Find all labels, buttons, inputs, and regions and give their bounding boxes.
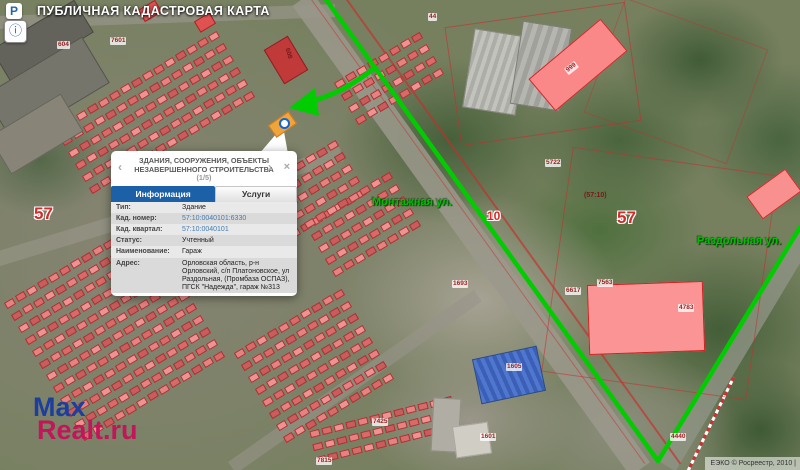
info-field-row: Статус:Учтенный [111,235,297,246]
garage-building [29,315,41,326]
garage-building [40,309,52,320]
garage-building [174,309,186,320]
garage-building [90,344,102,355]
garage-building [280,401,292,412]
garage-building [310,351,322,362]
garage-building [403,69,415,80]
garage-building [273,389,285,400]
garage-building [177,130,189,141]
garage-building [105,109,117,120]
garage-building [372,427,383,436]
garage-building [126,354,138,365]
garage-building [252,353,264,364]
garage-building [147,390,159,401]
building [452,422,492,459]
garage-building [153,64,165,75]
garage-building [393,408,404,417]
garage-building [109,300,121,311]
garage-building [181,321,193,332]
garage-building [291,395,303,406]
garage-building [101,127,113,138]
garage-building [370,178,382,189]
garage-building [321,426,332,435]
garage-building [144,360,156,371]
garage-building [174,100,186,111]
garage-building [83,332,95,343]
garage-building [86,362,98,373]
garage-building [51,302,63,313]
garage-building [411,32,423,43]
garage-building [213,351,225,362]
garage-building [381,411,392,420]
garage-building [138,299,150,310]
garage-building [169,377,181,388]
garage-building [341,164,353,175]
garage-building [411,431,422,440]
garage-building [87,313,99,324]
garage-building [11,310,23,321]
field-label: Наименование: [111,246,182,257]
garage-building [369,228,381,239]
garage-building [189,74,201,85]
info-field-row: Кад. номер:57:10:0040101:6330 [111,213,297,224]
tab-information[interactable]: Информация [111,186,215,202]
close-popup-button[interactable]: × [284,162,290,172]
garage-building [333,423,344,432]
garage-building [399,88,411,99]
garage-building [167,297,179,308]
garage-building [112,330,124,341]
garage-building [47,321,59,332]
garage-building [313,382,325,393]
garage-building [348,176,360,187]
garage-building [311,230,323,241]
garage-building [73,289,85,300]
garage-building [380,221,392,232]
garage-building [138,89,150,100]
garage-building [149,82,161,93]
garage-building [115,361,127,372]
garage-building [407,50,419,61]
cadastral-map-app: 6047601449995722169366177563478316057425… [0,0,800,470]
garage-building [349,392,361,403]
garage-building [145,311,157,322]
garage-building [325,254,337,265]
garage-building [92,245,104,256]
garage-building [278,322,290,333]
garage-building [4,298,16,309]
garage-building [166,347,178,358]
garage-building [116,312,128,323]
info-field-row: Кад. квартал:57:10:0040101 [111,224,297,235]
parcel-number-label: 1693 [452,280,468,288]
header: Р ПУБЛИЧНАЯ КАДАСТРОВАЯ КАРТА [0,0,800,24]
garage-building [362,216,374,227]
garage-building [68,147,80,158]
garage-building [402,208,414,219]
watermark: Max Realt.ru [33,396,138,442]
garage-building [112,121,124,132]
garage-building [97,146,109,157]
garage-building [81,252,93,263]
garage-building [163,106,175,117]
garage-building [432,68,444,79]
garage-building [381,82,393,93]
garage-building [127,95,139,106]
garage-building [405,405,416,414]
garage-building [374,70,386,81]
garage-building [133,366,145,377]
garage-building [307,320,319,331]
garage-building [80,301,92,312]
garage-building [134,107,146,118]
garage-building [327,452,338,461]
garage-building [59,265,71,276]
garage-building [222,55,234,66]
garage-building [360,386,372,397]
garage-building [347,313,359,324]
garage-building [315,196,327,207]
garage-building [399,434,410,443]
garage-building [318,242,330,253]
garage-building [245,341,257,352]
garage-building [277,371,289,382]
garage-building [68,357,80,368]
garage-building [285,334,297,345]
garage-building [75,159,87,170]
garage-building [158,384,170,395]
garage-building [69,308,81,319]
garage-building [32,346,44,357]
garage-building [70,258,82,269]
garage-building [336,436,347,445]
field-label: Кад. номер: [111,213,182,224]
garage-building [111,380,123,391]
garage-building [267,328,279,339]
garage-building [255,384,267,395]
garage-building [333,289,345,300]
garage-building [185,303,197,314]
garage-building [378,52,390,63]
garage-building [156,94,168,105]
garage-building [94,325,106,336]
watermark-line2: Realt.ru [37,419,138,442]
garage-building [351,446,362,455]
garage-building [387,233,399,244]
garage-building [184,352,196,363]
garage-building [262,396,274,407]
garage-building [314,332,326,343]
garage-building [84,282,96,293]
garage-building [322,223,334,234]
garage-building [129,385,141,396]
garage-building [66,277,78,288]
garage-building [185,93,197,104]
garage-building [86,152,98,163]
garage-building [274,340,286,351]
parcel-number-label: 7601 [110,37,126,45]
garage-building [57,363,69,374]
garage-building [202,357,214,368]
garage-building [343,331,355,342]
garage-building [177,340,189,351]
garage-building [339,350,351,361]
garage-building [79,140,91,151]
garage-building [325,326,337,337]
garage-building [79,350,91,361]
garage-building [354,325,366,336]
garage-building [297,191,309,202]
garage-building [151,372,163,383]
garage-building [97,356,109,367]
garage-building [408,418,419,427]
garage-building [389,45,401,56]
garage-building [337,183,349,194]
garage-building [26,285,38,296]
garage-building [359,185,371,196]
garage-building [348,433,359,442]
garage-building [108,139,120,150]
garage-building [317,363,329,374]
garage-building [130,126,142,137]
garage-building [76,320,88,331]
field-value-link[interactable]: 57:10:0040101 [182,224,297,235]
garage-building [396,421,407,430]
garage-building [152,113,164,124]
popup-tabs: Информация Услуги [111,186,297,202]
garage-building [384,202,396,213]
garage-building [65,326,77,337]
info-button[interactable]: ⓘ [4,20,27,43]
garage-building [119,342,131,353]
popup-header: ‹ ЗДАНИЯ, СООРУЖЕНИЯ, ОБЪЕКТЫ НЕЗАВЕРШЕН… [111,151,297,186]
garage-building [311,302,323,313]
garage-building [207,80,219,91]
garage-building [241,360,253,371]
garage-building [200,68,212,79]
garage-building [137,138,149,149]
garage-building [204,49,216,60]
garage-building [192,105,204,116]
garage-building [347,241,359,252]
garage-building [232,97,244,108]
garage-building [312,442,323,451]
garage-building [25,334,37,345]
garage-building [329,235,341,246]
field-value-link[interactable]: 57:10:0040101:6330 [182,213,297,224]
garage-building [182,62,194,73]
garage-building [82,381,94,392]
garage-building [296,327,308,338]
garage-building [365,246,377,257]
garage-building [104,368,116,379]
garage-building [173,359,185,370]
info-field-row: Наименование:Гараж [111,246,297,257]
garage-building [93,164,105,175]
garage-building [376,240,388,251]
garage-building [218,73,230,84]
garage-building [136,397,148,408]
garage-building [123,324,135,335]
building [264,36,309,85]
field-value: Орловская область, р-н Орловский, с/п Пл… [182,258,297,294]
garage-building [55,284,67,295]
garage-building [321,344,333,355]
garage-building [159,335,171,346]
garage-building [162,365,174,376]
garage-building [199,327,211,338]
parcel-number-label: 5722 [545,159,561,167]
garage-building [75,369,87,380]
garage-building [122,373,134,384]
garage-building [98,306,110,317]
garage-building [214,92,226,103]
garage-building [22,303,34,314]
garage-building [127,305,139,316]
garage-building [171,69,183,80]
garage-building [208,31,220,42]
garage-building [191,364,203,375]
garage-building [180,371,192,382]
garage-building [234,348,246,359]
garage-building [101,337,113,348]
feature-info-popup: ‹ ЗДАНИЯ, СООРУЖЕНИЯ, ОБЪЕКТЫ НЕЗАВЕРШЕН… [111,151,297,296]
garage-building [256,335,268,346]
garage-building [421,74,433,85]
info-field-row: Адрес:Орловская область, р-н Орловский, … [111,258,297,294]
garage-building [387,437,398,446]
route-arrowhead-icon [289,88,319,116]
garage-building [203,98,215,109]
field-label: Адрес: [111,258,182,294]
garage-building [319,177,331,188]
garage-building [48,272,60,283]
garage-building [324,439,335,448]
garage-building [54,333,66,344]
garage-building [164,57,176,68]
garage-building [145,101,157,112]
garage-building [360,430,371,439]
garage-building [123,114,135,125]
garage-building [400,38,412,49]
garage-building [371,379,383,390]
prev-object-button[interactable]: ‹ [118,162,122,172]
garage-building [181,112,193,123]
garage-building [83,122,95,133]
garage-building [343,259,355,270]
garage-building [211,61,223,72]
garage-building [148,131,160,142]
garage-building [358,234,370,245]
garage-building [388,94,400,105]
garage-building [46,370,58,381]
garage-building [170,118,182,129]
garage-building [308,184,320,195]
garage-building [366,197,378,208]
garage-building [116,102,128,113]
map-attribution: ЕЭКО © Росреестр, 2010 | [705,457,800,470]
garage-building [39,358,51,369]
garage-building [336,247,348,258]
garage-building [64,375,76,386]
garage-building [72,338,84,349]
garage-building [82,171,94,182]
garage-building [119,133,131,144]
field-value: Гараж [182,246,297,257]
garage-building [196,86,208,97]
garage-building [225,85,237,96]
garage-building [91,294,103,305]
garage-building [332,338,344,349]
garage-building [109,90,121,101]
garage-building [288,364,300,375]
garage-building [355,114,367,125]
garage-building [398,226,410,237]
garage-building [396,57,408,68]
garage-building [339,449,350,458]
garage-building [369,414,380,423]
garage-building [195,345,207,356]
garage-building [163,316,175,327]
garage-building [334,78,346,89]
garage-building [134,317,146,328]
garage-building [309,429,320,438]
garage-building [77,270,89,281]
garage-building [120,83,132,94]
next-object-button[interactable]: › [268,162,272,172]
garage-building [160,76,172,87]
rosreestr-logo-icon: Р [6,3,22,19]
garage-building [357,417,368,426]
garage-building [306,370,318,381]
garage-building [377,190,389,201]
garage-building [355,204,367,215]
garage-building [330,171,342,182]
garage-building [188,124,200,135]
garage-building [367,58,379,69]
info-field-row: Тип:Здание [111,202,297,213]
garage-building [155,353,167,364]
garage-building [130,336,142,347]
garage-building [90,134,102,145]
garage-building [350,343,362,354]
garage-building [344,210,356,221]
garage-building [414,62,426,73]
garage-building [289,315,301,326]
garage-building [304,203,316,214]
garage-building [188,333,200,344]
garage-building [335,368,347,379]
field-label: Статус: [111,235,182,246]
garage-building [44,290,56,301]
garage-building [420,415,431,424]
field-label: Кад. квартал: [111,224,182,235]
garage-building [76,110,88,121]
garage-building [341,90,353,101]
garage-building [382,373,394,384]
garage-building [391,214,403,225]
garage-building [292,346,304,357]
garage-building [167,88,179,99]
garage-building [345,420,356,429]
tab-services[interactable]: Услуги [215,186,297,202]
garage-building [166,137,178,148]
garage-building [322,295,334,306]
garage-building [266,377,278,388]
garage-building [105,318,117,329]
garage-building [58,314,70,325]
garage-building [62,296,74,307]
